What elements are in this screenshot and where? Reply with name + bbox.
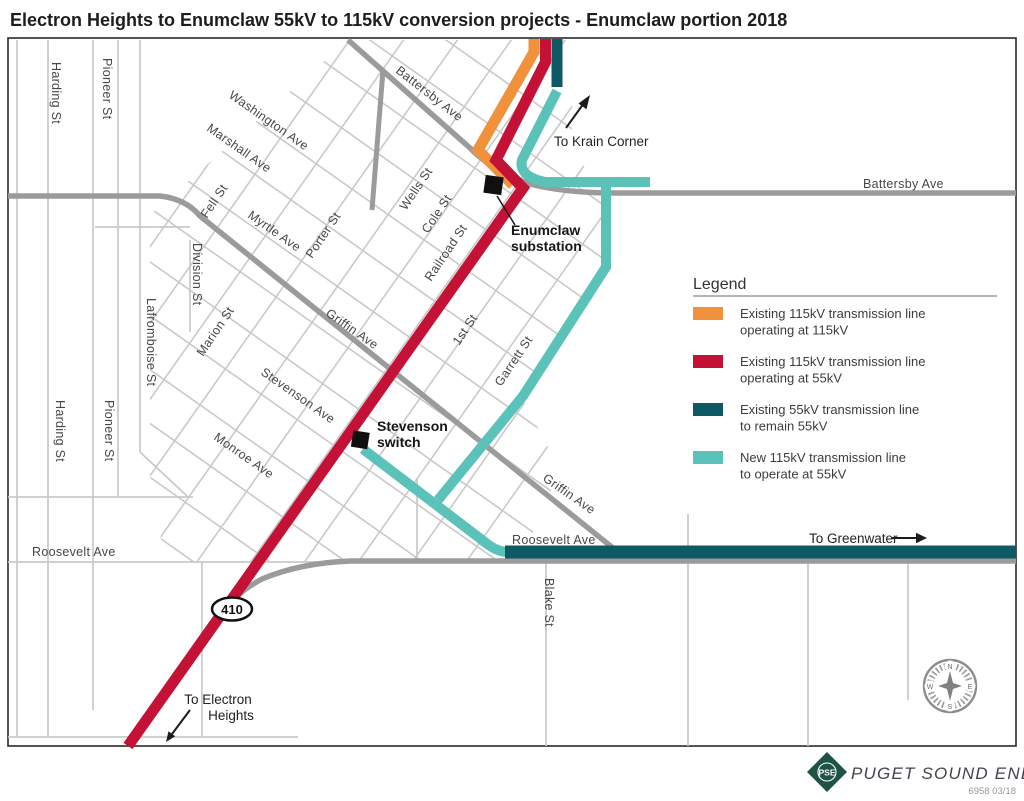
legend-item-line1: New 115kV transmission line xyxy=(740,450,906,465)
document-code: 6958 03/18 xyxy=(968,786,1016,797)
street-label: Harding St xyxy=(53,400,67,462)
street-label: Lafromboise St xyxy=(144,298,158,386)
krain-label: To Krain Corner xyxy=(554,134,649,149)
switch-label-1: Stevenson xyxy=(377,418,448,434)
compass-w: W xyxy=(927,684,934,691)
compass-s: S xyxy=(948,704,953,711)
street-label: Harding St xyxy=(49,62,63,124)
switch-label-2: switch xyxy=(377,434,421,450)
highway-410-shield: 410 xyxy=(212,598,252,621)
highway-410-label: 410 xyxy=(221,602,243,617)
street-label: Blake St xyxy=(542,578,556,627)
greenwater-label: To Greenwater xyxy=(809,531,898,546)
legend-item-line1: Existing 115kV transmission line xyxy=(740,354,925,369)
legend-item-line2: to remain 55kV xyxy=(740,419,828,434)
street-label: Pioneer St xyxy=(100,58,114,120)
electron-label-1: To Electron xyxy=(184,692,252,707)
compass-e: E xyxy=(968,684,973,691)
enumclaw-substation-marker xyxy=(483,175,503,195)
legend-swatch xyxy=(693,307,723,320)
compass-rose: N E S W xyxy=(924,660,976,712)
legend-swatch xyxy=(693,403,723,416)
street-label: Roosevelt Ave xyxy=(512,533,596,547)
legend-item-line2: operating at 115kV xyxy=(740,323,848,338)
legend-item-line1: Existing 115kV transmission line xyxy=(740,306,925,321)
legend-swatch xyxy=(693,355,723,368)
legend-item-line1: Existing 55kV transmission line xyxy=(740,402,919,417)
street-label: Battersby Ave xyxy=(863,177,944,191)
street-label: Division St xyxy=(190,243,204,306)
street-label: Pioneer St xyxy=(102,400,116,462)
stevenson-switch-marker xyxy=(351,430,370,449)
legend-item-line2: to operate at 55kV xyxy=(740,467,847,482)
project-map-figure: Electron Heights to Enumclaw 55kV to 115… xyxy=(0,0,1024,801)
substation-label-2: substation xyxy=(511,238,582,254)
company-name: PUGET SOUND ENERGY xyxy=(851,764,1024,783)
substation-label-1: Enumclaw xyxy=(511,222,580,238)
street-label: Roosevelt Ave xyxy=(32,545,116,559)
legend-title: Legend xyxy=(693,276,746,293)
electron-label-2: Heights xyxy=(208,708,254,723)
page-title: Electron Heights to Enumclaw 55kV to 115… xyxy=(10,10,787,30)
pse-logo-text: PSE xyxy=(818,768,835,778)
legend-item-line2: operating at 55kV xyxy=(740,371,842,386)
legend-swatch xyxy=(693,451,723,464)
map-border xyxy=(8,38,1016,746)
compass-n: N xyxy=(947,664,952,671)
